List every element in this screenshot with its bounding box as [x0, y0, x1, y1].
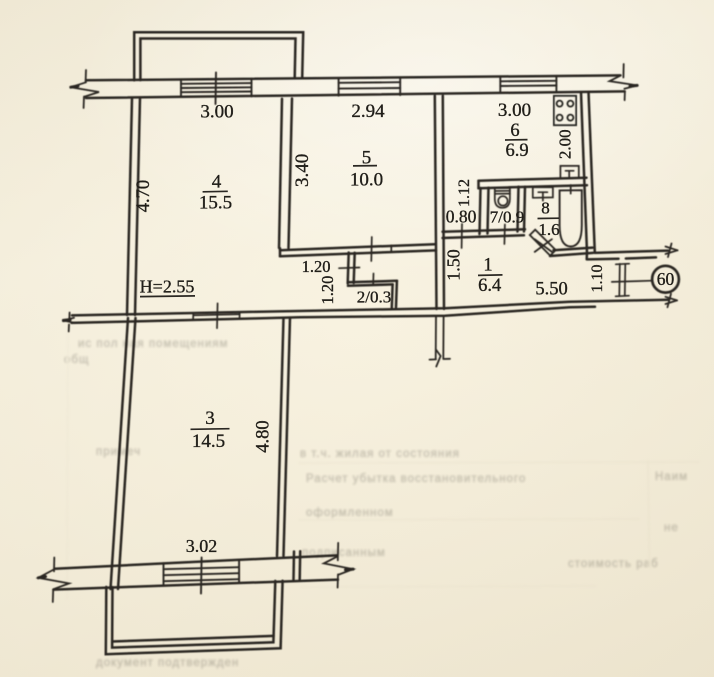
svg-text:6.9: 6.9 [505, 141, 528, 161]
svg-text:Наим: Наим [655, 471, 688, 483]
svg-text:7/0.9: 7/0.9 [490, 207, 524, 226]
svg-text:Расчет убытка восстановительно: Расчет убытка восстановительного [306, 473, 526, 485]
svg-text:6.4: 6.4 [478, 276, 501, 296]
svg-text:2/0.3: 2/0.3 [357, 288, 391, 307]
svg-text:не: не [664, 522, 679, 534]
svg-text:3.00: 3.00 [200, 102, 233, 123]
svg-text:3.02: 3.02 [186, 536, 218, 556]
svg-text:4.70: 4.70 [134, 180, 154, 212]
svg-text:6: 6 [510, 121, 519, 141]
svg-text:документ подтвержден: документ подтвержден [96, 657, 239, 669]
svg-text:1.10: 1.10 [589, 265, 606, 293]
svg-text:2.00: 2.00 [556, 129, 575, 159]
svg-text:1.6: 1.6 [538, 220, 559, 239]
svg-text:1.20: 1.20 [302, 257, 331, 276]
svg-text:4.80: 4.80 [254, 420, 274, 452]
svg-text:оформленном: оформленном [306, 507, 394, 519]
svg-text:60: 60 [657, 269, 675, 289]
svg-text:0.80: 0.80 [446, 207, 477, 227]
svg-text:3.40: 3.40 [292, 154, 313, 187]
svg-text:1.20: 1.20 [318, 276, 337, 305]
svg-text:3: 3 [205, 408, 215, 429]
svg-text:1.50: 1.50 [444, 249, 464, 281]
svg-text:4: 4 [212, 172, 222, 193]
svg-text:15.5: 15.5 [199, 193, 232, 214]
svg-text:10.0: 10.0 [350, 169, 383, 190]
svg-text:H=2.55: H=2.55 [140, 277, 195, 297]
svg-text:5.50: 5.50 [535, 280, 567, 300]
svg-text:14.5: 14.5 [192, 431, 225, 452]
svg-text:ис пол ная помещениям: ис пол ная помещениям [78, 338, 228, 350]
svg-text:1.12: 1.12 [456, 179, 473, 207]
svg-text:стоимость раб: стоимость раб [568, 558, 659, 570]
svg-text:в т.ч. жилая от состояния: в т.ч. жилая от состояния [300, 448, 460, 460]
svg-text:8: 8 [541, 199, 550, 218]
svg-text:1: 1 [483, 255, 492, 275]
svg-text:2.94: 2.94 [351, 101, 385, 122]
svg-text:3.00: 3.00 [498, 100, 531, 121]
